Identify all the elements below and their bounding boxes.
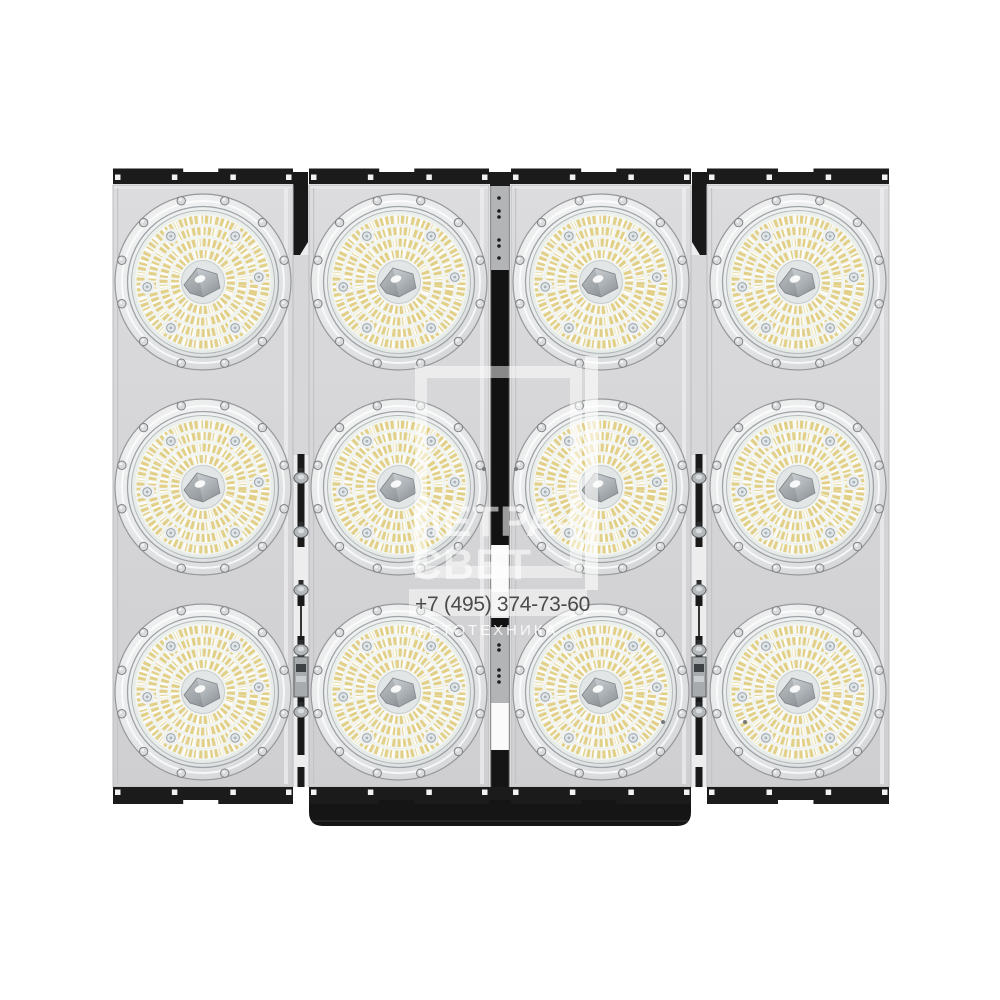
watermark-phone: +7 (495) 374-73-60 (415, 593, 590, 617)
junction-left (293, 172, 309, 787)
led-module (311, 194, 487, 370)
watermark-logo-bar (585, 356, 598, 590)
led-module (513, 194, 689, 370)
watermark-brand-line1: ПЕТРА- (411, 501, 573, 544)
led-module (115, 604, 291, 780)
led-module (710, 399, 886, 575)
led-module (115, 194, 291, 370)
watermark-subtitle: СВЕТОТЕХНИКА (402, 622, 559, 639)
led-module (115, 399, 291, 575)
junction-right (691, 172, 707, 787)
product-photo: ПЕТРА- СВЕТ +7 (495) 374-73-60 СВЕТОТЕХН… (0, 0, 1000, 1000)
watermark-brand-line2: СВЕТ (411, 544, 532, 587)
led-module (710, 604, 886, 780)
led-module (710, 194, 886, 370)
